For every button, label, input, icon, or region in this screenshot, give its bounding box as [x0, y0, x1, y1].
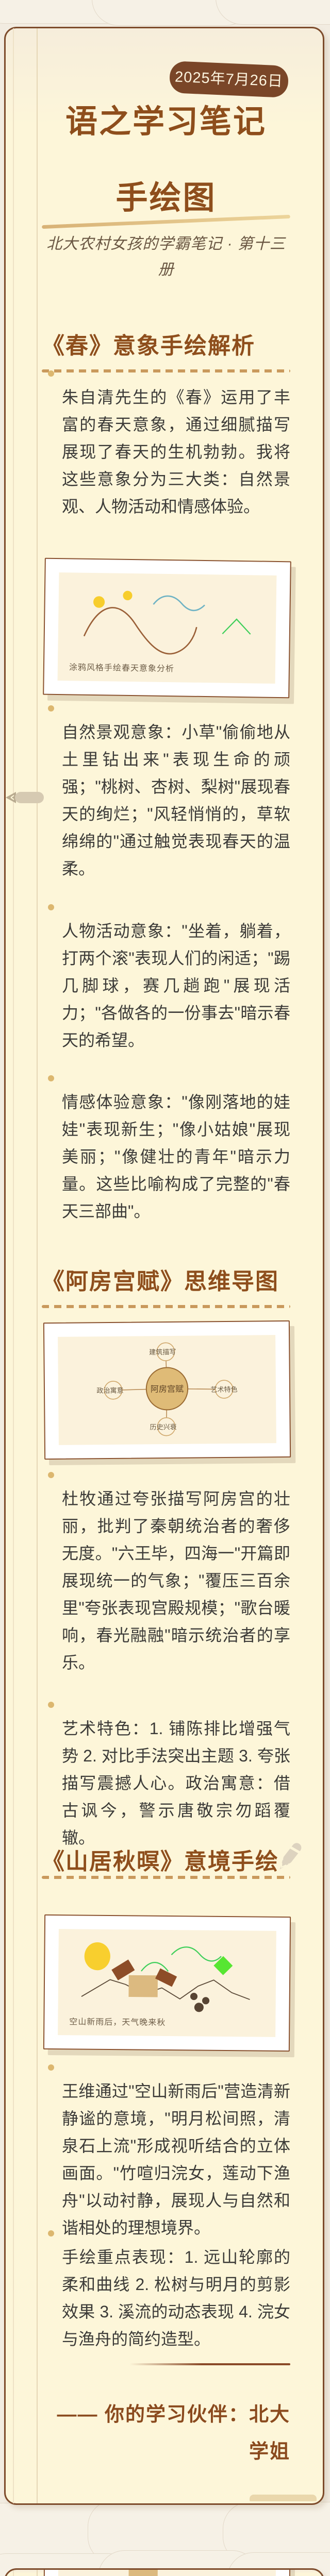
lotus-diamond	[213, 1956, 233, 1975]
subtitle: 北大农村女孩的学霸笔记 · 第十三册	[42, 231, 290, 283]
sketch-card-spring: 涂鸦风格手绘春天意象分析	[43, 558, 291, 699]
dashed-divider	[42, 1876, 290, 1879]
sun-icon	[93, 596, 105, 608]
mindmap-left-label: 政治寓意	[96, 1386, 123, 1395]
binding-line	[37, 2570, 38, 2576]
pencil-left-icon	[5, 791, 45, 804]
bullet-dot-icon	[48, 1702, 54, 1708]
section-heading-spring: 《春》意象手绘解析	[42, 327, 300, 360]
binding-line	[13, 2570, 14, 2576]
mindmap-right-label: 艺术特色	[210, 1385, 237, 1394]
bullet-dot-icon	[48, 1472, 54, 1478]
house-block	[128, 1975, 158, 1997]
dashed-divider	[42, 369, 290, 372]
wind-wave	[153, 596, 205, 611]
sketch-card-autumn-repeat: 空山新雨后，天气晚来秋	[43, 2568, 291, 2576]
bullet-dot-icon	[48, 2064, 54, 2071]
page-title-line2: 手绘图	[42, 172, 290, 218]
stream-arc	[141, 1962, 168, 1972]
autumn-doodle-panel: 空山新雨后，天气晚来秋	[58, 1929, 276, 2037]
page-title-line1: 语之学习笔记	[42, 95, 290, 142]
mindmap-drawing: 阿房宫赋 建筑描写 历史兴衰 政治寓意 艺术特色	[58, 1335, 276, 1445]
bullet-item: 情感体验意象："像刚落地的娃娃"表现新生；"像小姑娘"展现美丽；"像健壮的青年"…	[42, 1089, 290, 1225]
binding-line	[37, 28, 38, 2503]
binding-line	[13, 28, 14, 2503]
stream-wave	[171, 1947, 221, 1961]
bullet-item: 朱自清先生的《春》运用了丰富的春天意象，通过细腻描写展现了春天的生机勃勃。我将这…	[42, 384, 290, 520]
background-lump	[216, 0, 330, 25]
bullet-item: 王维通过"空山新雨后"营造清新静谧的意境，"明月松间照，清泉石上流"形成视听结合…	[42, 2078, 290, 2242]
bullet-item: 人物活动意象："坐着，躺着，打两个滚"表现人们的闲适；"踢几脚球，赛几趟跑"展现…	[42, 918, 290, 1054]
notes-article: 2025年7月26日 语之学习笔记 手绘图 北大农村女孩的学霸笔记 · 第十三册…	[0, 0, 330, 2576]
stone-dot	[202, 1997, 209, 2004]
page-curl	[250, 2495, 317, 2501]
mindmap-bottom-label: 历史兴衰	[150, 1422, 176, 1431]
pine-block	[155, 1968, 177, 1987]
stone-dot	[194, 2003, 204, 2012]
moon-icon	[84, 1942, 110, 1971]
sketch-card-autumn: 空山新雨后，天气晚来秋	[43, 1914, 291, 2052]
bullet-item: 手绘重点表现：1. 远山轮廓的柔和曲线 2. 松树与明月的剪影效果 3. 溪流的…	[42, 2244, 290, 2353]
bullet-item: 自然景观意象：小草"偷偷地从土里钻出来"表现生命的顽强；"桃树、杏树、梨树"展现…	[42, 719, 290, 883]
mindmap-top-label: 建筑描写	[149, 1348, 176, 1357]
dashed-divider	[42, 1305, 290, 1308]
signature-divider	[129, 2363, 290, 2365]
sketch-card-mindmap: 阿房宫赋 建筑描写 历史兴衰 政治寓意 艺术特色	[43, 1320, 291, 1460]
mindmap-center-label: 阿房宫赋	[151, 1384, 184, 1394]
date-badge: 2025年7月26日	[169, 61, 289, 98]
spring-doodle-panel: 涂鸦风格手绘春天意象分析	[58, 572, 277, 684]
sun-small-icon	[123, 591, 132, 601]
autumn-doodle-panel: 空山新雨后，天气晚来秋	[58, 2568, 276, 2576]
section-heading-shanjuqiuming: 《山居秋暝》意境手绘	[42, 1843, 300, 1876]
bullet-item: 杜牧通过夸张描写阿房宫的壮丽，批判了秦朝统治者的奢侈无度。"六王毕，四海一"开篇…	[42, 1485, 290, 1676]
stone-dot	[190, 1993, 197, 2000]
sketch-caption: 涂鸦风格手绘春天意象分析	[69, 660, 174, 674]
bullet-dot-icon	[48, 2230, 54, 2236]
pencil-icon	[274, 1839, 304, 1876]
hill-curve	[84, 607, 197, 654]
bullet-dot-icon	[48, 370, 54, 377]
notebook-page-next: 空山新雨后，天气晚来秋	[4, 2568, 324, 2576]
autumn-doodle-drawing	[58, 2568, 276, 2576]
house-block	[128, 2568, 158, 2576]
bullet-dot-icon	[48, 1075, 54, 1081]
bullet-dot-icon	[48, 705, 54, 711]
bullet-item: 艺术特色：1. 铺陈排比增强气势 2. 对比手法突出主题 3. 夸张描写震撼人心…	[42, 1715, 290, 1852]
footer-signature: —— 你的学习伙伴：北大学姐	[42, 2396, 290, 2470]
sketch-caption: 空山新雨后，天气晚来秋	[69, 2014, 166, 2028]
notebook-page: 2025年7月26日 语之学习笔记 手绘图 北大农村女孩的学霸笔记 · 第十三册…	[4, 27, 324, 2505]
mindmap-panel: 阿房宫赋 建筑描写 历史兴衰 政治寓意 艺术特色	[58, 1335, 276, 1445]
grass-caret	[222, 619, 251, 634]
section-heading-efanggong: 《阿房宫赋》思维导图	[42, 1263, 300, 1296]
bullet-dot-icon	[48, 904, 54, 910]
